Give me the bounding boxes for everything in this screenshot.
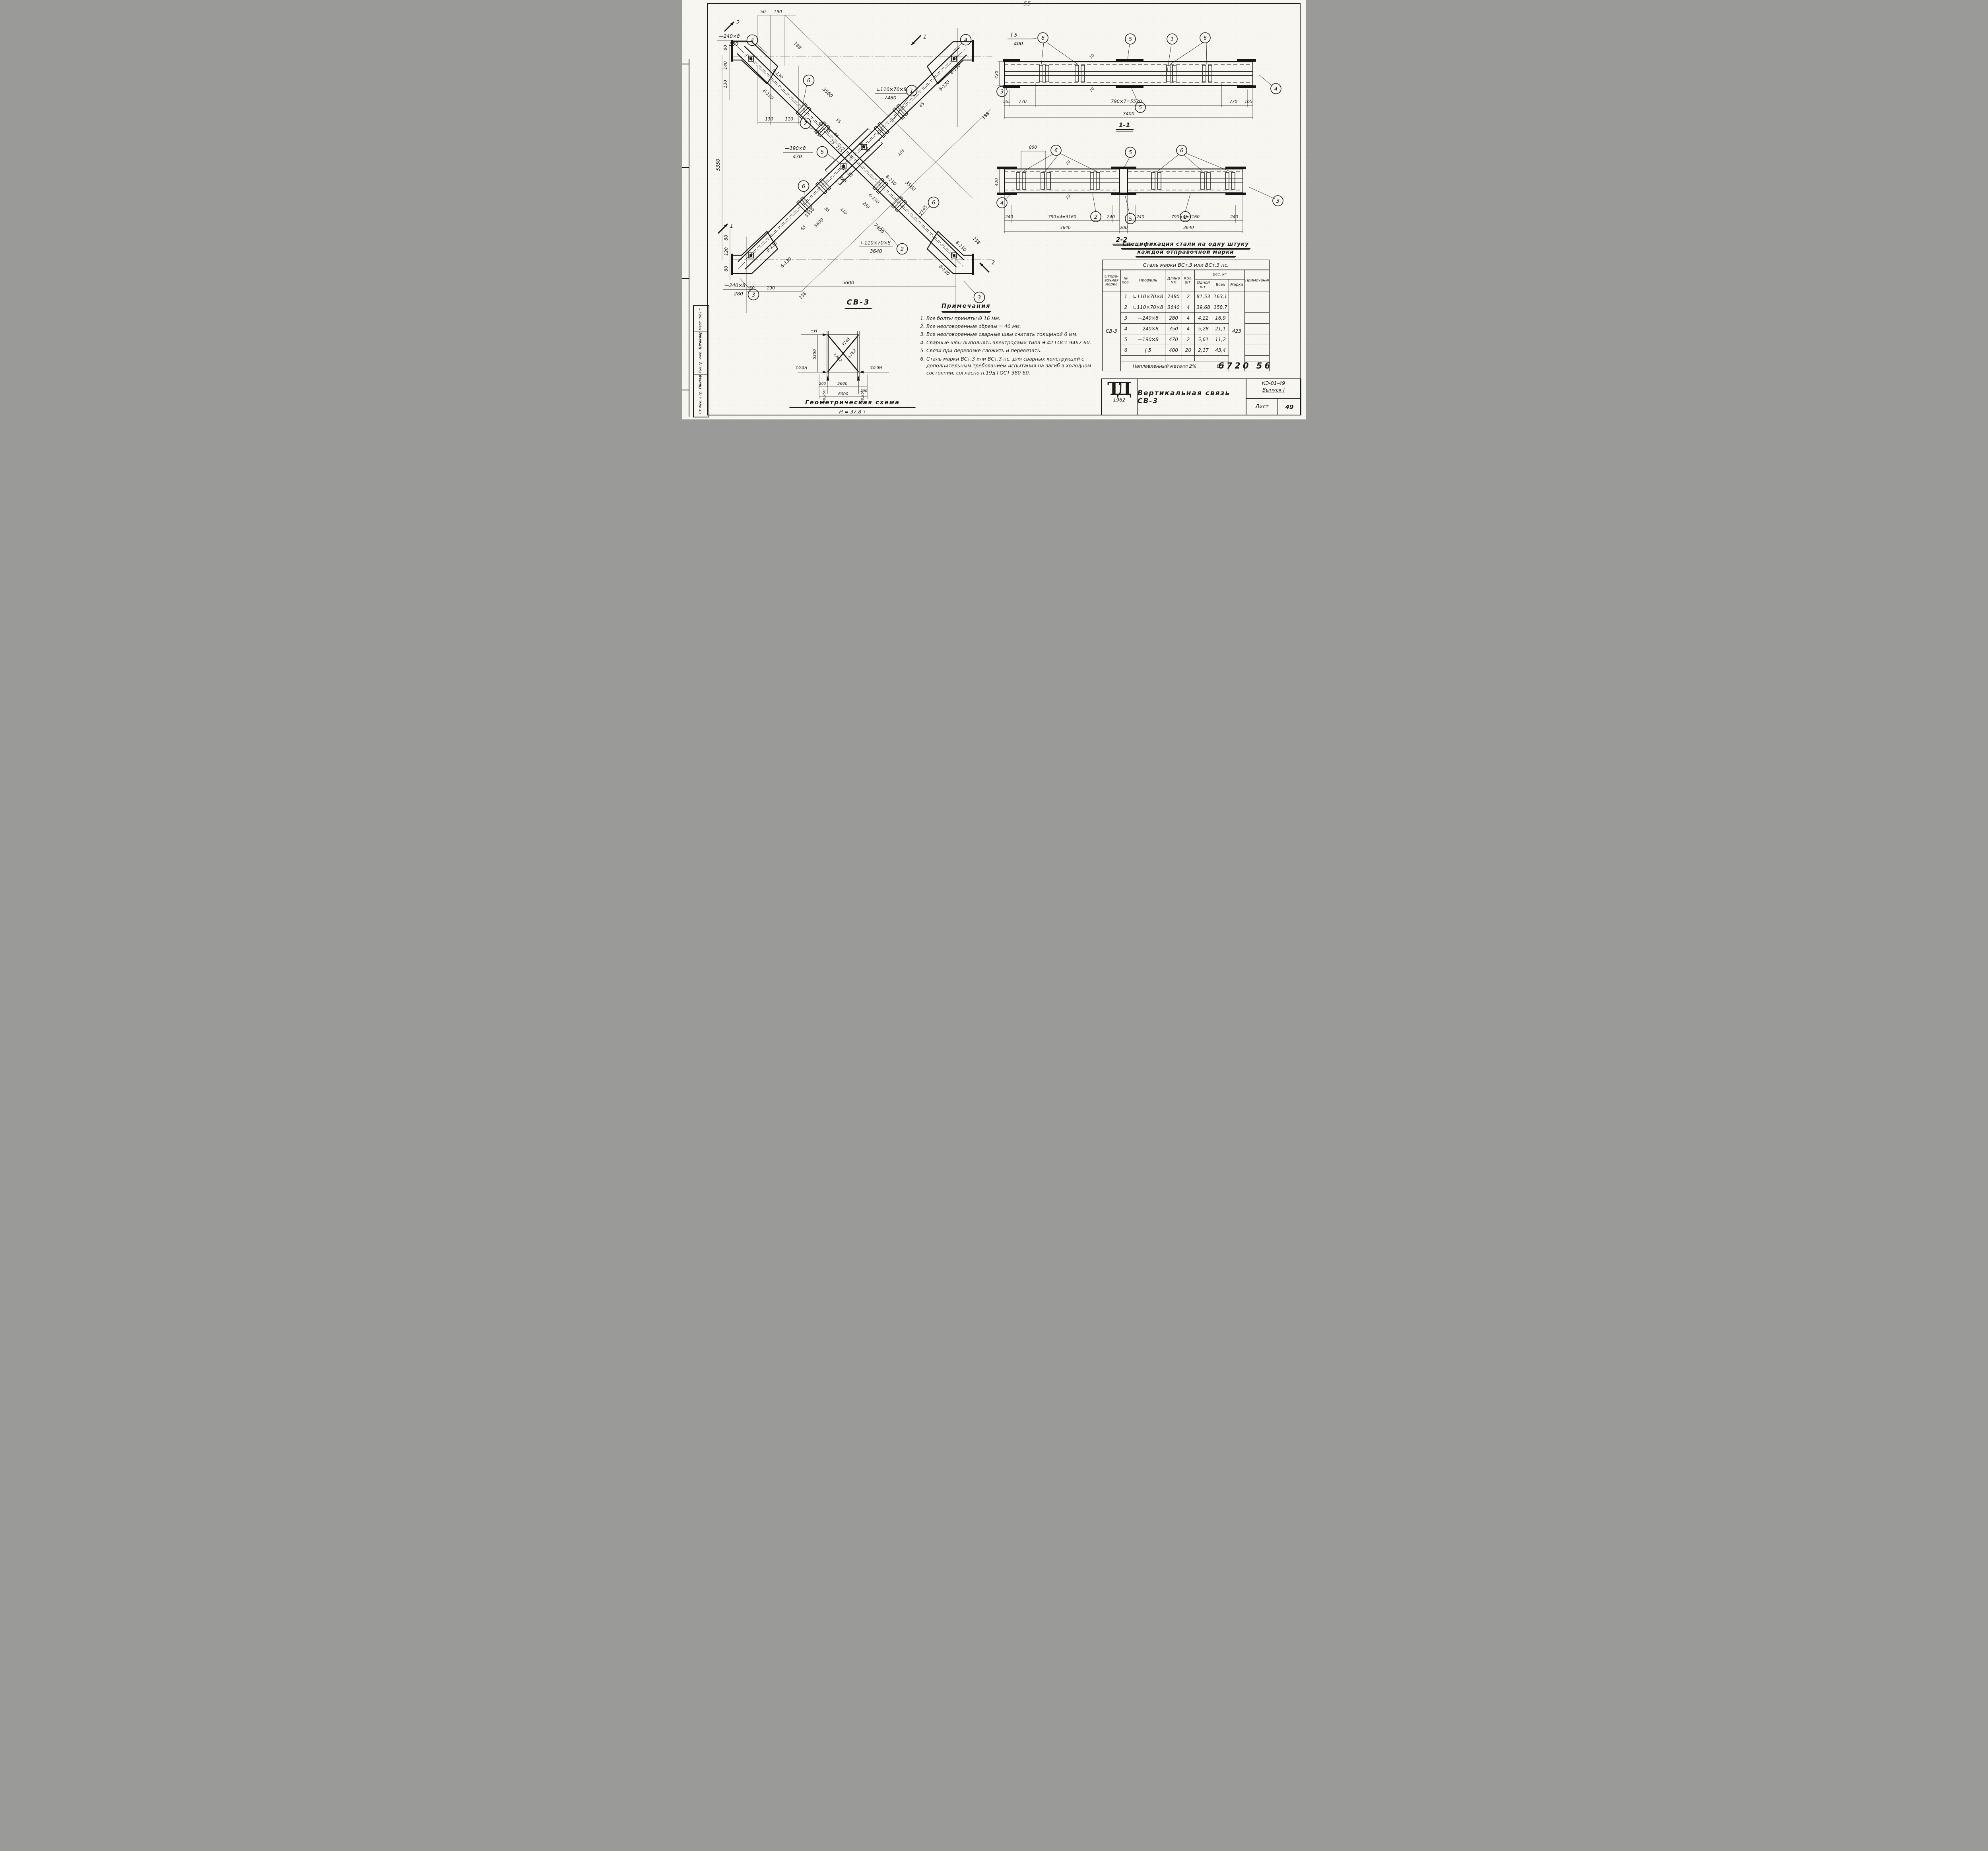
dim: 5350 [715, 159, 721, 171]
center-splice-plates [825, 128, 883, 185]
svg-text:1: 1 [730, 223, 733, 229]
svg-text:770: 770 [1019, 99, 1027, 104]
dim: 80 [723, 45, 728, 50]
stamp-date: Март 1962 г. [699, 307, 703, 330]
balloon-3: 3 [974, 292, 985, 303]
cell-notes [1245, 324, 1270, 334]
dim: 7400 [873, 222, 885, 235]
cell-qty: 4 [1182, 324, 1195, 334]
svg-text:5600: 5600 [837, 382, 847, 386]
empty-cell [1121, 356, 1131, 361]
col-weight-mark: Марки [1229, 279, 1245, 291]
svg-text:5: 5 [1129, 150, 1132, 156]
drawing-title: Вертикальная связь СВ-3 [1138, 379, 1246, 415]
balloon-3: 3 [997, 86, 1007, 97]
cell-length: 400 [1165, 345, 1182, 356]
balloon-2: 2 [1091, 211, 1101, 222]
cell-length: 7480 [1165, 291, 1182, 302]
cell-length: 470 [1165, 334, 1182, 345]
member-b-diagonal [731, 40, 974, 276]
cell-w-one: 5,61 [1195, 334, 1212, 345]
dim: 3560 [821, 86, 834, 99]
empty-cell [1195, 356, 1212, 361]
callout-pos5: —190×8 470 [783, 146, 813, 159]
notes-list: Все болты приняты Ø 16 мм. Все неоговоре… [920, 315, 1092, 377]
balloon-6: 6 [804, 75, 814, 86]
document-issue: Выпуск I [1246, 387, 1301, 394]
balloon-2: 2 [897, 244, 908, 254]
svg-text:65: 65 [918, 101, 925, 108]
cell-profile: ∟110×70×8 [1131, 302, 1165, 313]
svg-text:1-1: 1-1 [1119, 121, 1130, 129]
col-pos: № поз. [1121, 270, 1131, 291]
svg-text:115: 115 [835, 145, 843, 153]
svg-text:1: 1 [923, 34, 926, 40]
svg-text:35: 35 [823, 206, 830, 213]
svg-text:6: 6 [802, 184, 805, 190]
svg-text:110: 110 [839, 207, 848, 215]
dims [1000, 151, 1243, 233]
spec-mark-name: СВ-3 [1103, 291, 1121, 371]
balloon-6: 6 [798, 181, 809, 192]
cell-pos: 1 [1121, 291, 1131, 302]
svg-text:420: 420 [994, 178, 999, 186]
channel-stiffeners [1039, 65, 1212, 82]
svg-text:55: 55 [835, 118, 842, 124]
fold-mark [682, 64, 689, 64]
cell-pos: 2 [1121, 302, 1131, 313]
caption-1-1: 1-1 [1116, 121, 1134, 131]
svg-text:∓0,5Н: ∓0,5Н [795, 366, 807, 370]
svg-text:10: 10 [1089, 53, 1095, 60]
cell-w-all: 21,1 [1212, 324, 1229, 334]
svg-text:5: 5 [1129, 37, 1132, 43]
binding-margin-line [689, 59, 689, 417]
col-weight-one: Одной шт. [1195, 279, 1212, 291]
stamp-role-1: Ст.инж. II гр. Пингер [694, 374, 707, 415]
col-profile: Профиль [1131, 270, 1165, 291]
section-2-2-drawing: 6 5 6 4 3 2 5 2 800 420 240 790×4=3160 2… [996, 139, 1287, 248]
balloon-5: 5 [1125, 147, 1136, 157]
cell-w-one: 2,17 [1195, 345, 1212, 356]
balloon-3: 3 [748, 289, 759, 300]
svg-text:[ 5: [ 5 [1011, 32, 1017, 38]
svg-text:8-130: 8-130 [949, 63, 962, 76]
svg-text:10: 10 [1065, 194, 1071, 200]
cell-notes [1245, 334, 1270, 345]
svg-text:—190×8: —190×8 [785, 146, 806, 151]
svg-text:5: 5 [1139, 105, 1142, 111]
balloon-4: 4 [747, 35, 758, 46]
col-length: Длина мм [1165, 270, 1182, 291]
inventory-number: 6720 56 [1218, 361, 1273, 371]
bolt-symbols [748, 56, 957, 258]
svg-text:4: 4 [1000, 200, 1004, 206]
title-block: ТД 1962 Вертикальная связь СВ-3 КЭ-01-49… [1101, 378, 1301, 415]
section-mark-2: 2 [980, 260, 995, 272]
cell-profile: —240×8 [1131, 324, 1165, 334]
svg-text:2: 2 [736, 20, 740, 26]
balloon-6: 6 [1051, 145, 1061, 155]
section-mark-1: 1 [911, 34, 926, 45]
note-item: Все неоговоренные сварные швы считать то… [926, 331, 1092, 338]
geometry-scheme: ±Н 5350 ∓0,5Н ∓0,5Н ∓0,95Н ∓0,95Н 200 56… [794, 325, 913, 405]
svg-text:6: 6 [932, 200, 935, 206]
balloon-6: 6 [928, 197, 939, 208]
svg-text:3: 3 [978, 295, 981, 301]
balloon-3: 3 [1273, 196, 1283, 206]
cell-notes [1245, 302, 1270, 313]
dim: 188 [793, 41, 802, 50]
svg-text:200: 200 [1120, 225, 1128, 230]
member-section-left [1004, 169, 1120, 193]
cell-notes [1245, 291, 1270, 302]
svg-text:4: 4 [964, 37, 967, 43]
svg-text:200: 200 [860, 389, 867, 393]
cell-pos: 6 [1121, 345, 1131, 356]
organization-logo: ТД 1962 [1102, 379, 1138, 415]
notes-title: Примечания [942, 302, 991, 312]
svg-text:800: 800 [1029, 145, 1037, 150]
position-callouts: —240×8 350 ∟110×70×8 7480 —190×8 470 ∟11… [717, 33, 907, 297]
empty-cell [1212, 356, 1229, 361]
end-plates [732, 40, 973, 275]
channel-stiffeners [1016, 173, 1235, 189]
svg-text:790×4=3160: 790×4=3160 [1171, 215, 1200, 219]
svg-text:75: 75 [829, 139, 835, 146]
col-weight-all: Всех [1212, 279, 1229, 291]
col-notes: Примечания [1245, 270, 1270, 291]
svg-text:3640: 3640 [1183, 225, 1194, 230]
cell-notes [1245, 345, 1270, 356]
dim: 188 [981, 111, 990, 120]
cell-profile: —190×8 [1131, 334, 1165, 345]
main-elevation-drawing: 50 190 188 80 140 130 130 110 5350 5600 … [694, 6, 1000, 320]
svg-text:240: 240 [1005, 215, 1013, 219]
stamp-role-2: Рук.гр. инж. Штейнер [694, 332, 707, 374]
dim: 7745 [918, 204, 928, 217]
svg-text:6: 6 [1180, 148, 1183, 154]
dimension-labels: 50 190 188 80 140 130 130 110 5350 5600 … [715, 9, 990, 300]
dim-labels: 800 420 240 790×4=3160 240 240 790×4=316… [994, 145, 1238, 230]
spec-table: Сталь марки ВСт.3 или ВСт.3 пс. Отпра-во… [1102, 260, 1270, 371]
svg-text:790×4=3160: 790×4=3160 [1048, 215, 1076, 219]
balloon-6: 6 [1038, 33, 1048, 43]
cell-pos: 5 [1121, 334, 1131, 345]
left-signature-stamp: Ст.инж. II гр. Пингер Рук.гр. инж. Штейн… [693, 305, 709, 417]
document-number-cell: КЭ-01-49 Выпуск I [1246, 379, 1301, 399]
cell-qty: 2 [1182, 291, 1195, 302]
svg-text:6-130: 6-130 [762, 88, 775, 101]
dim: 140 [723, 61, 728, 70]
col-mark: Отпра-вочная марка [1103, 270, 1121, 291]
callout-channel: [ 5 400 [1008, 32, 1031, 47]
svg-text:250: 250 [862, 201, 870, 210]
dim: 190 [774, 9, 782, 14]
svg-text:4: 4 [751, 38, 754, 44]
cell-qty: 4 [1182, 313, 1195, 324]
svg-text:8-130: 8-130 [858, 141, 871, 153]
svg-text:350: 350 [729, 41, 738, 47]
svg-text:770: 770 [1229, 99, 1237, 104]
svg-text:6-130: 6-130 [868, 192, 880, 205]
dim: 158 [798, 291, 808, 300]
cell-qty: 20 [1182, 345, 1195, 356]
specification-block: Спецификация стали на одну штуку каждой … [1102, 241, 1269, 371]
callout-pos1: ∟110×70×8 7480 [875, 87, 907, 101]
svg-text:4: 4 [1274, 86, 1277, 92]
stamp-name-1: Пингер [699, 375, 703, 389]
dim: 50 [749, 285, 755, 291]
sheet-number: 49 [1278, 399, 1301, 415]
stamp-role-1-label: Ст.инж. II гр. [699, 390, 703, 414]
balloon-1: 1 [907, 85, 917, 96]
svg-text:5: 5 [821, 149, 824, 155]
balloon-4: 4 [997, 198, 1007, 208]
dim: 5350 [804, 207, 815, 218]
dim: 5600 [842, 280, 854, 285]
svg-text:2: 2 [901, 246, 904, 252]
note-item: Связи при перевозке сложить и перевязать… [926, 347, 1092, 354]
dim: 120 [724, 247, 729, 256]
svg-text:7400: 7400 [1123, 111, 1134, 116]
cell-notes [1245, 313, 1270, 324]
drawing-sheet: 55 [682, 0, 1306, 419]
balloon-6: 6 [1200, 33, 1210, 43]
svg-text:5: 5 [1129, 216, 1132, 222]
svg-text:400: 400 [1014, 41, 1023, 47]
columns [827, 331, 859, 381]
empty-cell [1245, 356, 1270, 361]
dim-labels: 420 165 770 790×7=5530 770 165 7400 10 1… [994, 53, 1252, 116]
cell-w-one: 5,28 [1195, 324, 1212, 334]
col-qty: Кол. шт. [1182, 270, 1195, 291]
svg-text:5350: 5350 [813, 349, 817, 359]
svg-text:6: 6 [1041, 35, 1044, 41]
cell-profile: —240×8 [1131, 313, 1165, 324]
svg-text:65: 65 [800, 225, 807, 231]
fold-mark [682, 278, 689, 279]
labels: ±Н 5350 ∓0,5Н ∓0,5Н ∓0,95Н ∓0,95Н 200 56… [795, 328, 882, 403]
dim: 130 [723, 80, 728, 88]
svg-text:2: 2 [804, 121, 807, 127]
cell-length: 3640 [1165, 302, 1182, 313]
document-number: КЭ-01-49 [1246, 380, 1301, 387]
dim: 50 [760, 9, 766, 14]
svg-text:95: 95 [825, 127, 831, 134]
svg-text:6000: 6000 [838, 392, 848, 396]
callout-pos2: ∟110×70×8 3640 [859, 240, 893, 254]
cell-w-all: 163,1 [1212, 291, 1229, 302]
svg-text:6-130: 6-130 [780, 256, 792, 269]
empty-cell [1121, 361, 1131, 371]
page-pencil-mark: 55 [1023, 0, 1031, 7]
logo-letters: ТД [1099, 380, 1137, 398]
svg-text:240: 240 [1107, 215, 1115, 219]
balloons: 6 5 6 4 3 2 5 2 [997, 145, 1283, 224]
svg-text:—240×8: —240×8 [719, 33, 740, 39]
svg-text:3: 3 [752, 292, 755, 298]
svg-text:200: 200 [819, 382, 826, 386]
cell-profile: ∟110×70×8 [1131, 291, 1165, 302]
svg-text:2: 2 [992, 260, 995, 266]
dim: 5600 [813, 217, 825, 229]
dim: 110 [785, 116, 793, 122]
main-view-caption: СВ-3 [845, 298, 872, 308]
cell-w-all: 16,9 [1212, 313, 1229, 324]
cell-w-all: 43,4 [1212, 345, 1229, 356]
svg-text:3: 3 [1000, 89, 1004, 95]
note-item: Все неоговоренные обрезы = 40 мм. [926, 323, 1092, 330]
spec-title-line1: Спецификация стали на одну штуку [1121, 241, 1250, 249]
note-item: Сварные швы выполнять электродами типа Э… [926, 340, 1092, 346]
balloon-4: 4 [1271, 83, 1281, 94]
cell-length: 280 [1165, 313, 1182, 324]
balloon-4: 4 [961, 35, 971, 45]
svg-text:7480: 7480 [884, 95, 897, 101]
cell-pos: 3 [1121, 313, 1131, 324]
svg-text:8-130: 8-130 [955, 240, 967, 253]
svg-text:±26,2: ±26,2 [847, 348, 858, 359]
stamp-date-cell: Март 1962 г. [694, 306, 707, 332]
stamp-role-2-label: Рук.гр. инж. [699, 351, 703, 373]
geometry-subtitle: Н = 37,8 т [789, 409, 916, 415]
svg-text:3640: 3640 [870, 248, 882, 254]
dim: 190 [767, 285, 775, 291]
note-item: Сталь марки ВСт.3 или ВСт.3 пс. для свар… [926, 356, 1092, 376]
svg-text:240: 240 [1230, 215, 1238, 219]
dim: 130 [765, 116, 773, 122]
cell-w-one: 81,53 [1195, 291, 1212, 302]
svg-text:2: 2 [1094, 214, 1097, 220]
svg-text:10: 10 [1089, 87, 1095, 93]
svg-text:6: 6 [1204, 35, 1207, 41]
cell-qty: 2 [1182, 334, 1195, 345]
dim: 158 [972, 236, 981, 246]
stamp-name-2: Штейнер [699, 332, 703, 349]
svg-text:125: 125 [876, 127, 884, 136]
section-mark-2: 2 [724, 20, 740, 31]
svg-text:6-130: 6-130 [938, 264, 951, 277]
svg-text:∟110×70×8: ∟110×70×8 [860, 240, 891, 246]
balloon-6: 6 [1176, 145, 1187, 155]
svg-text:165: 165 [1244, 99, 1252, 104]
balloon-5: 5 [817, 147, 828, 157]
note-item: Все болты приняты Ø 16 мм. [926, 315, 1092, 322]
balloon-1: 1 [1167, 34, 1177, 44]
dim: 80 [724, 266, 729, 272]
svg-text:1: 1 [1171, 37, 1174, 43]
fold-mark [682, 167, 689, 168]
svg-text:3640: 3640 [1060, 225, 1071, 230]
balloon-5: 5 [1125, 213, 1136, 224]
sheet-label: Лист [1246, 399, 1278, 415]
cell-profile: [ 5 [1131, 345, 1165, 356]
svg-text:6: 6 [1054, 148, 1058, 154]
empty-cell [1165, 356, 1182, 361]
geometry-caption: Геометрическая схема [789, 399, 916, 407]
dim: 3560 [904, 180, 917, 192]
svg-text:3: 3 [1276, 198, 1279, 204]
dim: 80 [724, 235, 729, 241]
svg-text:∓0,5Н: ∓0,5Н [870, 366, 882, 370]
svg-text:470: 470 [793, 154, 802, 159]
svg-text:±26,2: ±26,2 [833, 352, 843, 363]
svg-text:6: 6 [807, 78, 810, 84]
empty-cell [1131, 356, 1165, 361]
svg-text:10: 10 [1065, 160, 1071, 166]
cell-w-one: 4,22 [1195, 313, 1212, 324]
leaders [1006, 38, 1272, 103]
cell-w-all: 158,7 [1212, 302, 1229, 313]
svg-text:—240×8: —240×8 [724, 283, 745, 288]
spec-steel-grade: Сталь марки ВСт.3 или ВСт.3 пс. [1103, 260, 1270, 270]
balloon-5: 5 [1125, 34, 1136, 44]
plates [997, 167, 1246, 195]
svg-text:280: 280 [734, 291, 743, 297]
svg-text:∟110×70×8: ∟110×70×8 [876, 87, 907, 92]
section-1-1-drawing: [ 5 400 6 5 1 6 3 4 5 420 165 770 790×7=… [996, 24, 1287, 135]
empty-cell [1182, 356, 1195, 361]
svg-text:165: 165 [1003, 99, 1011, 104]
svg-text:±Н: ±Н [810, 328, 817, 334]
notes-block: Примечания Все болты приняты Ø 16 мм. Вс… [920, 302, 1092, 378]
spec-footer-label: Наплавленный металл 2% [1131, 361, 1212, 371]
svg-text:790×7=5530: 790×7=5530 [1111, 99, 1142, 104]
cell-length: 350 [1165, 324, 1182, 334]
svg-text:420: 420 [994, 71, 999, 79]
cell-w-one: 39,68 [1195, 302, 1212, 313]
fold-mark [682, 390, 689, 390]
plates [1003, 59, 1256, 88]
svg-text:1: 1 [910, 88, 913, 94]
spec-mark-weight: 423 [1229, 291, 1245, 371]
col-weight: Вес, кг [1195, 270, 1245, 279]
svg-text:240: 240 [1136, 215, 1144, 219]
svg-text:220: 220 [839, 175, 847, 184]
section-mark-1: 1 [718, 223, 733, 233]
spec-title-line2: каждой отправочной марки [1136, 249, 1236, 257]
callout-pos4: —240×8 350 [717, 33, 747, 47]
cell-qty: 4 [1182, 302, 1195, 313]
cell-w-all: 11,2 [1212, 334, 1229, 345]
cell-pos: 4 [1121, 324, 1131, 334]
svg-text:155: 155 [897, 148, 905, 157]
